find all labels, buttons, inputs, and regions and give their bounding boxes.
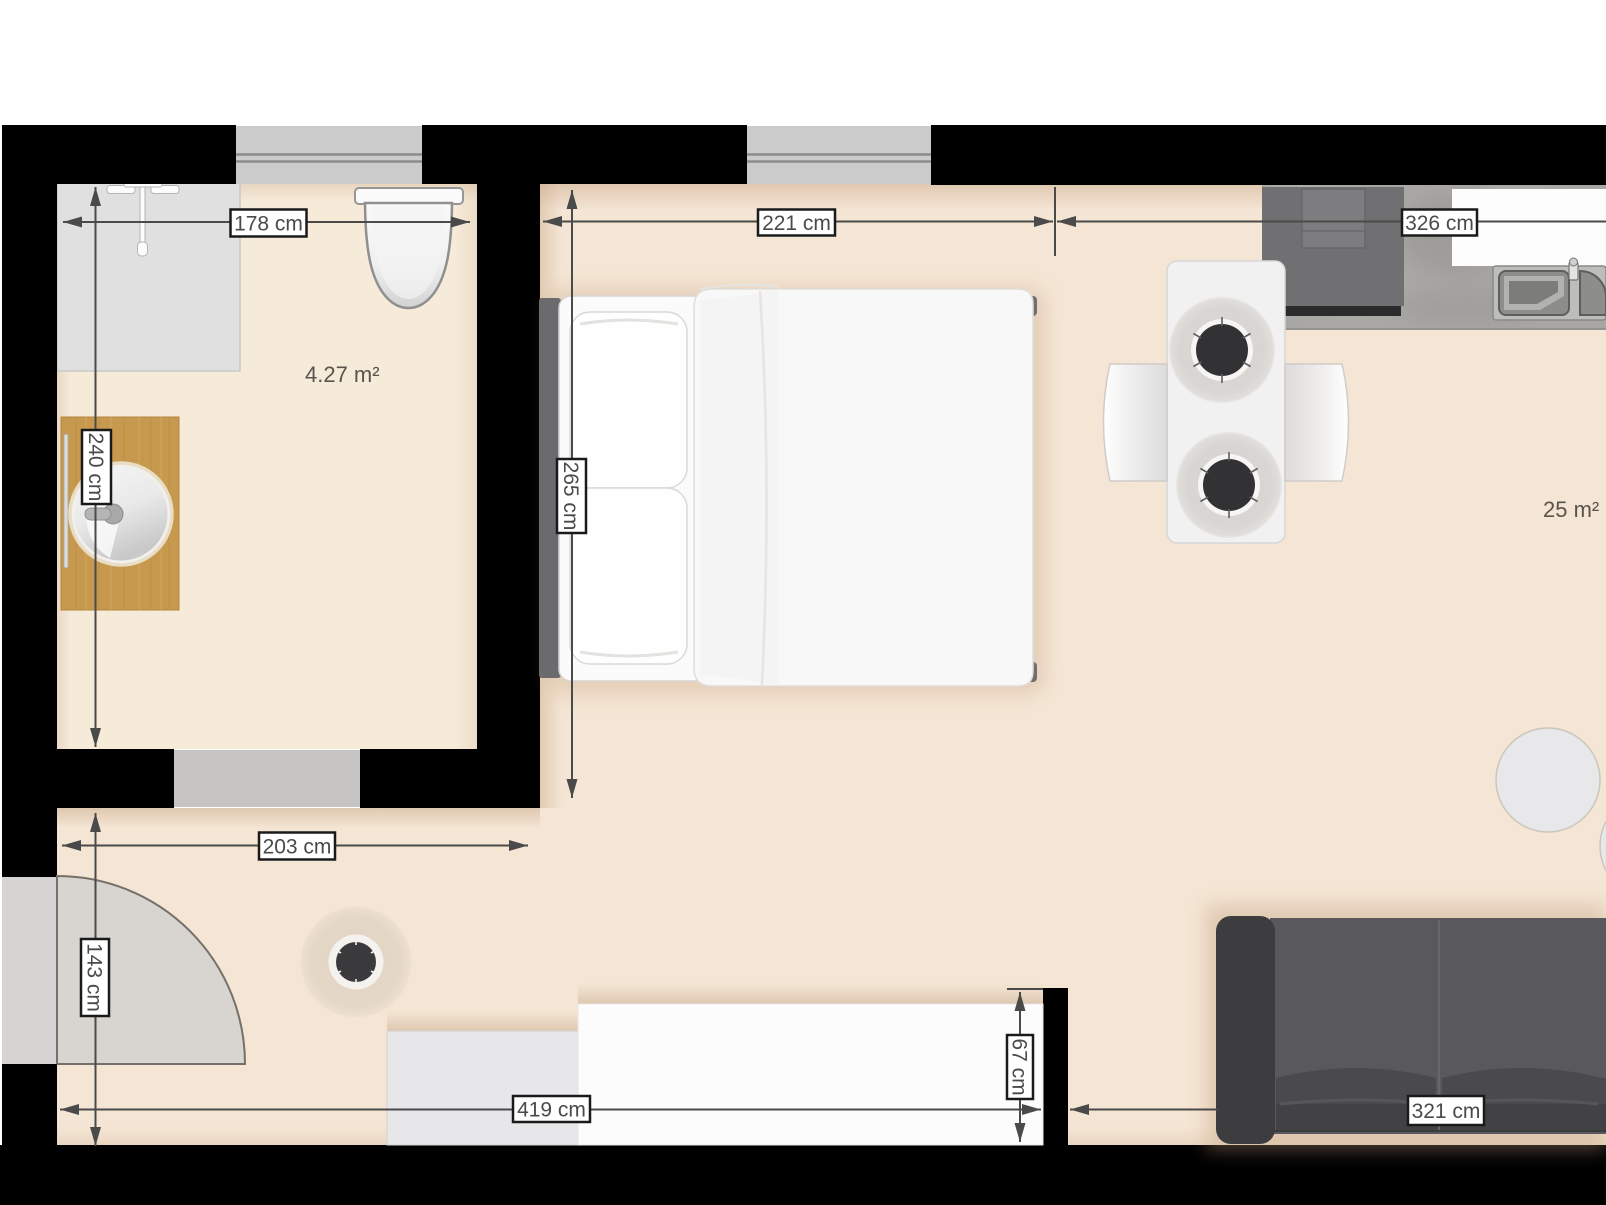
svg-text:25 m²: 25 m² bbox=[1543, 497, 1599, 522]
svg-text:265 cm: 265 cm bbox=[559, 462, 582, 531]
svg-text:4.27 m²: 4.27 m² bbox=[305, 362, 380, 387]
svg-text:67 cm: 67 cm bbox=[1008, 1038, 1031, 1095]
svg-text:419 cm: 419 cm bbox=[517, 1099, 586, 1122]
svg-text:240 cm: 240 cm bbox=[84, 433, 107, 502]
svg-text:326 cm: 326 cm bbox=[1405, 212, 1474, 235]
svg-text:321 cm: 321 cm bbox=[1412, 1100, 1481, 1123]
svg-text:221 cm: 221 cm bbox=[762, 212, 831, 235]
svg-text:143 cm: 143 cm bbox=[83, 943, 106, 1012]
svg-text:178 cm: 178 cm bbox=[234, 213, 303, 236]
svg-text:203 cm: 203 cm bbox=[263, 836, 332, 859]
